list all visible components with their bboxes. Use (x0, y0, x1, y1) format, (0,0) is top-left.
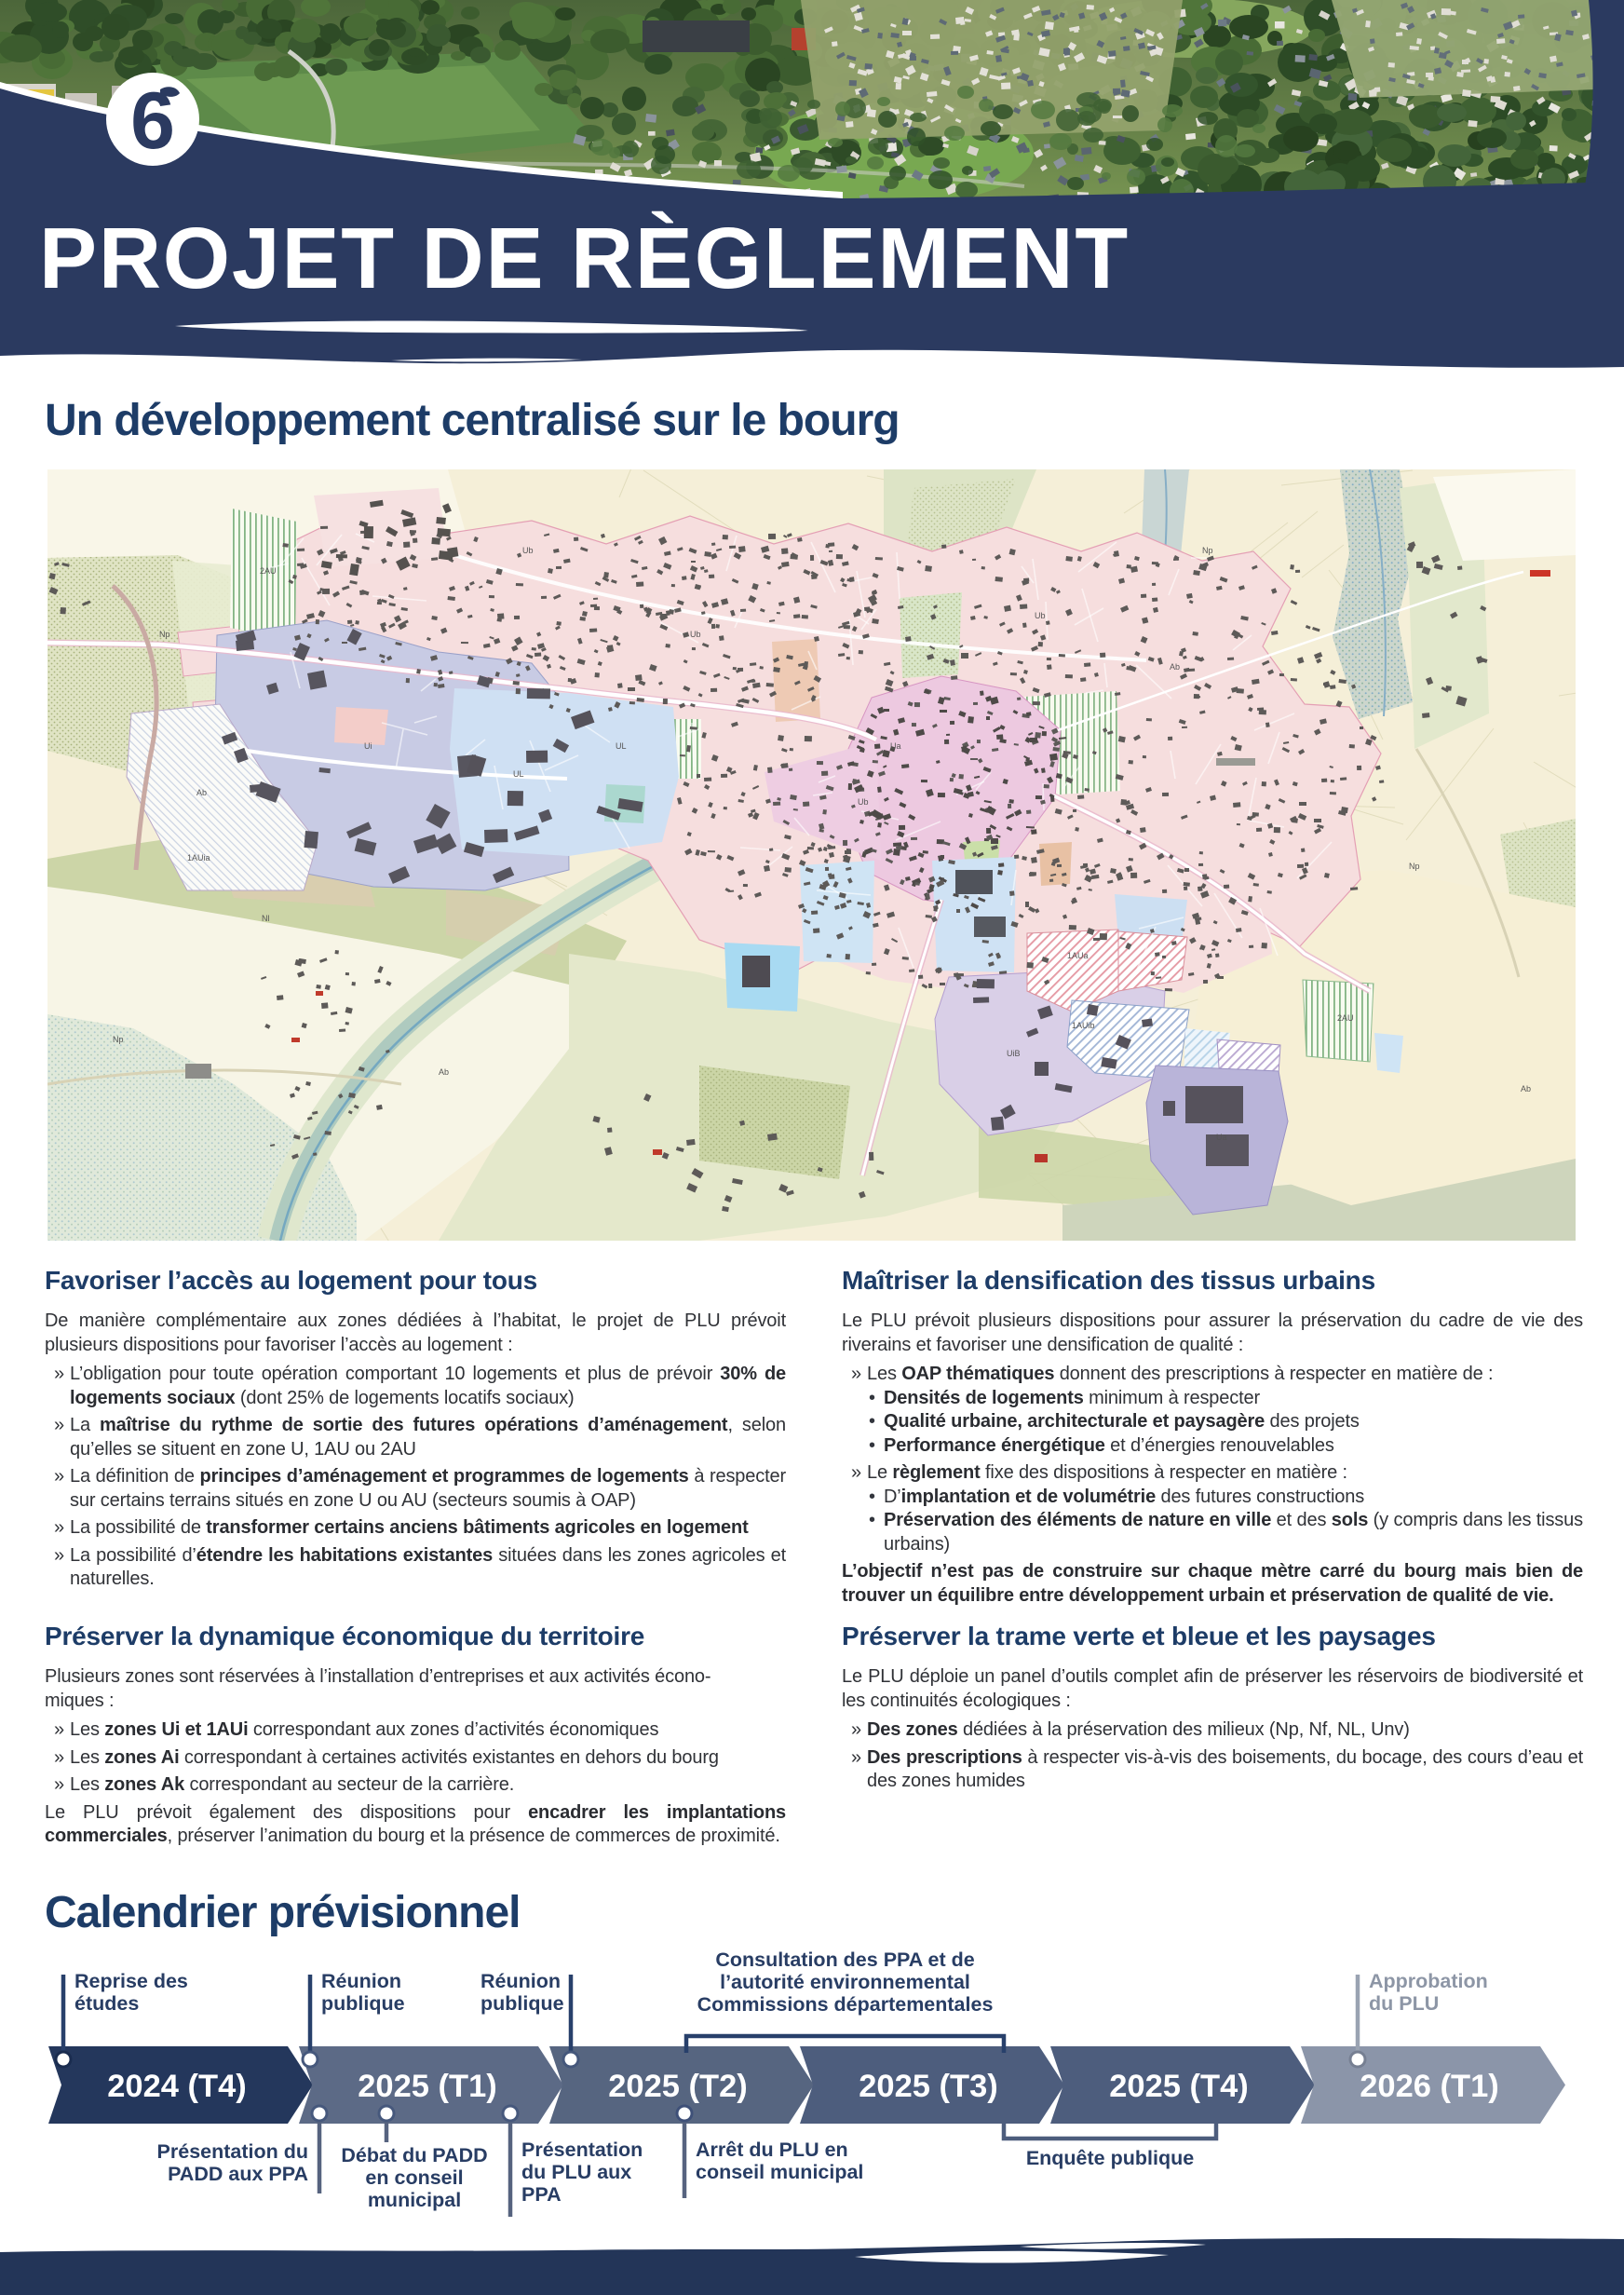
svg-text:Ua: Ua (890, 741, 901, 751)
svg-text:Nl: Nl (262, 914, 270, 923)
svg-text:Np: Np (1202, 546, 1213, 555)
svg-text:UL: UL (616, 741, 627, 751)
svg-text:Ab: Ab (439, 1067, 449, 1077)
svg-text:2AU: 2AU (260, 566, 277, 576)
svg-text:2025 (T2): 2025 (T2) (608, 2069, 748, 2104)
svg-text:2025 (T4): 2025 (T4) (1109, 2069, 1249, 2104)
svg-text:Ub: Ub (858, 797, 869, 807)
svg-text:Ab: Ab (196, 788, 207, 797)
svg-text:UL: UL (513, 769, 524, 779)
svg-text:Np: Np (113, 1035, 124, 1044)
svg-text:Np: Np (159, 630, 170, 639)
svg-text:2AU: 2AU (1337, 1013, 1354, 1023)
svg-text:1AUa: 1AUa (1067, 951, 1089, 960)
svg-text:Ub: Ub (1035, 611, 1046, 620)
svg-text:1AUia: 1AUia (187, 853, 210, 862)
svg-text:2025 (T1): 2025 (T1) (358, 2069, 497, 2104)
svg-text:UiB: UiB (1007, 1049, 1021, 1058)
svg-text:1AUib: 1AUib (1072, 1021, 1095, 1030)
svg-text:Ub: Ub (522, 546, 534, 555)
svg-text:Ab: Ab (1521, 1084, 1531, 1093)
svg-text:2024 (T4): 2024 (T4) (107, 2069, 247, 2104)
svg-text:Np: Np (1409, 862, 1420, 871)
svg-text:2025 (T3): 2025 (T3) (859, 2069, 998, 2104)
svg-text:Ab: Ab (1170, 662, 1180, 672)
svg-text:Ub: Ub (690, 630, 701, 639)
svg-text:Ui: Ui (364, 741, 372, 751)
svg-text:2026 (T1): 2026 (T1) (1360, 2069, 1499, 2104)
svg-text:Ua: Ua (1216, 1133, 1227, 1142)
